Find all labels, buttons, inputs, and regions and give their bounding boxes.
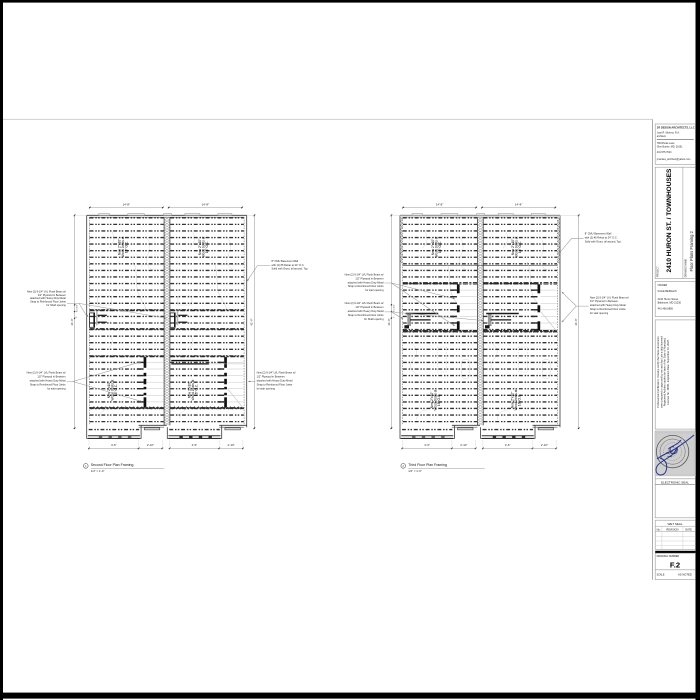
svg-text:2'-10": 2'-10" (228, 443, 235, 447)
svg-text:Strap to Reinforced Floor Jois: Strap to Reinforced Floor Joists (30, 300, 66, 304)
svg-text:16" O.C.: 16" O.C. (517, 394, 521, 406)
svg-text:attached with Heavy Duty Metal: attached with Heavy Duty Metal (590, 303, 626, 307)
svg-text:F.2: F.2 (670, 560, 680, 569)
svg-text:14'-8": 14'-8" (515, 203, 522, 207)
svg-text:New (2) 9-1/4" LVL Flush Beam: New (2) 9-1/4" LVL Flush Beam w/ (345, 301, 384, 305)
svg-text:41'-6": 41'-6" (574, 318, 578, 325)
svg-text:Baltimore, MD 21230: Baltimore, MD 21230 (658, 302, 682, 305)
svg-text:8'-1 1/2": 8'-1 1/2" (77, 304, 79, 312)
svg-text:1: 1 (85, 464, 87, 468)
svg-text:2410 HURON ST. / TOWNHOUSES: 2410 HURON ST. / TOWNHOUSES (666, 168, 673, 273)
svg-text:2'-10": 2'-10" (460, 443, 467, 447)
svg-text:1/2" Plywood in Between: 1/2" Plywood in Between (590, 299, 619, 303)
svg-text:KALIE BEINELIS: KALIE BEINELIS (658, 290, 677, 293)
svg-text:2'-10": 2'-10" (541, 443, 548, 447)
svg-text:ELECTRONIC SEAL: ELECTRONIC SEAL (661, 480, 689, 484)
svg-text:8" CMU Basement Wall: 8" CMU Basement Wall (272, 259, 299, 263)
svg-text:New (2) 9-1/4" LVL Flush Beam: New (2) 9-1/4" LVL Flush Beam w/ (257, 371, 296, 375)
svg-text:441.575.7624: 441.575.7624 (657, 151, 672, 154)
svg-text:Floor Plans Framing 2: Floor Plans Framing 2 (689, 231, 694, 272)
svg-text:AS NOTED: AS NOTED (678, 572, 692, 576)
svg-text:441.466.8856: 441.466.8856 (658, 307, 674, 310)
svg-text:14'-8": 14'-8" (202, 203, 209, 207)
svg-text:16" O.C.: 16" O.C. (205, 241, 209, 253)
svg-text:New (2) 9-1/4" LVL Flush Beam: New (2) 9-1/4" LVL Flush Beam w/ (590, 295, 629, 299)
svg-text:16" O.C.: 16" O.C. (194, 384, 198, 396)
svg-text:16" O.C.: 16" O.C. (437, 394, 441, 406)
svg-text:DATE: DATE (685, 528, 692, 531)
svg-text:16" O.C.: 16" O.C. (438, 241, 442, 253)
svg-text:for Shaft opening: for Shaft opening (46, 303, 66, 307)
svg-text:WET SEAL: WET SEAL (667, 522, 682, 526)
svg-text:for stair opening: for stair opening (257, 387, 276, 391)
svg-text:DRAWING NUMBER: DRAWING NUMBER (657, 555, 680, 558)
svg-text:14'-8": 14'-8" (123, 203, 130, 207)
svg-text:14'-8": 14'-8" (436, 203, 443, 207)
svg-text:7": 7" (77, 316, 79, 318)
svg-text:attached with Heavy Duty Metal: attached with Heavy Duty Metal (30, 378, 66, 382)
svg-text:2: 2 (402, 464, 404, 468)
svg-text:for stair opening: for stair opening (365, 288, 384, 292)
svg-text:1/4" = 1'-0": 1/4" = 1'-0" (91, 469, 105, 473)
svg-text:Strap to Reinforced Floor Jois: Strap to Reinforced Floor Joists (30, 382, 66, 386)
svg-text:OWNER: OWNER (658, 284, 668, 287)
svg-text:1/2" Plywood in Between: 1/2" Plywood in Between (355, 277, 384, 281)
svg-text:architect: architect (657, 135, 666, 138)
svg-text:16" O.C.: 16" O.C. (125, 241, 129, 253)
svg-text:License No. 16931, Expiration: License No. 16931, Expiration Date: Sept… (666, 339, 670, 405)
svg-text:8" CMU Basement Wall: 8" CMU Basement Wall (585, 231, 612, 235)
svg-text:4'-6": 4'-6" (192, 443, 198, 447)
svg-text:Strap to Reinforced Floor Jois: Strap to Reinforced Floor Joists (348, 313, 384, 317)
svg-text:1/2" Plywood in Between: 1/2" Plywood in Between (355, 305, 384, 309)
svg-text:41'-6": 41'-6" (250, 318, 254, 325)
svg-text:41'-6": 41'-6" (387, 318, 391, 325)
svg-text:41'-6": 41'-6" (70, 318, 74, 325)
svg-text:for stair opening: for stair opening (47, 386, 66, 390)
svg-text:Strap to Reinforced Floor Jois: Strap to Reinforced Floor Joists (348, 284, 384, 288)
svg-text:4'-6": 4'-6" (505, 443, 511, 447)
svg-text:New (2) 9-1/4" LVL Flush Beam: New (2) 9-1/4" LVL Flush Beam w/ (27, 289, 66, 293)
svg-text:4'-6": 4'-6" (424, 443, 430, 447)
svg-text:Solid with Grout, all around,: Solid with Grout, all around, Typ. (272, 267, 309, 271)
svg-text:Glen Burnie, MD, 21061: Glen Burnie, MD, 21061 (657, 146, 683, 149)
svg-text:1/4" = 1'-0": 1/4" = 1'-0" (408, 469, 422, 473)
svg-text:Solid with Grout, all around,: Solid with Grout, all around, Typ. (585, 240, 622, 244)
svg-text:with (2) #5 Rebar at 24" O.C.: with (2) #5 Rebar at 24" O.C. (272, 263, 305, 267)
svg-text:JR DESIGN ARCHITECTS, LLC: JR DESIGN ARCHITECTS, LLC (657, 126, 695, 130)
svg-text:No.: No. (657, 528, 661, 531)
svg-text:attached with Heavy Duty Metal: attached with Heavy Duty Metal (348, 280, 384, 284)
svg-text:1/2" Plywood in Between: 1/2" Plywood in Between (37, 374, 66, 378)
svg-text:attached with Heavy Duty Metal: attached with Heavy Duty Metal (348, 309, 384, 313)
svg-text:Strap to Reinforced Floor Jois: Strap to Reinforced Floor Joists (257, 383, 293, 387)
svg-text:with (2) #5 Rebar at 24" O.C.: with (2) #5 Rebar at 24" O.C. (585, 235, 618, 239)
svg-text:7": 7" (393, 316, 395, 318)
svg-text:attached with Heavy Duty Metal: attached with Heavy Duty Metal (30, 296, 66, 300)
svg-text:Second Floor Plan Framing: Second Floor Plan Framing (91, 463, 134, 467)
svg-text:DRAWING NAME:: DRAWING NAME: (684, 258, 687, 277)
svg-text:1/2" Plywood in Between: 1/2" Plywood in Between (38, 293, 67, 297)
svg-text:Third Floor Plan Framing: Third Floor Plan Framing (408, 463, 447, 467)
svg-text:for stair opening: for stair opening (590, 311, 609, 315)
svg-text:Strap to Reinforced Floor Jois: Strap to Reinforced Floor Joists (590, 307, 626, 311)
svg-text:4'-6": 4'-6" (111, 443, 117, 447)
svg-text:2'-10": 2'-10" (147, 443, 154, 447)
svg-text:SCALE: SCALE (657, 573, 665, 576)
svg-text:attached with Heavy Duty Metal: attached with Heavy Duty Metal (257, 379, 293, 383)
svg-text:New (2) 9-1/4" LVL Flush Beam: New (2) 9-1/4" LVL Flush Beam w/ (27, 370, 66, 374)
svg-text:for Shaft opening: for Shaft opening (364, 317, 384, 321)
svg-text:jmorales_architect@yahoo.com: jmorales_architect@yahoo.com (656, 158, 691, 161)
svg-text:REVISION: REVISION (666, 528, 678, 531)
svg-text:16" O.C.: 16" O.C. (518, 241, 522, 253)
svg-text:8'-1 1/2": 8'-1 1/2" (393, 304, 395, 312)
svg-text:PROJECT:: PROJECT: (657, 266, 659, 277)
svg-text:1/2" Plywood in Between: 1/2" Plywood in Between (257, 375, 286, 379)
svg-text:New (2) 9-1/4" LVL Flush Beam: New (2) 9-1/4" LVL Flush Beam w/ (345, 273, 384, 277)
